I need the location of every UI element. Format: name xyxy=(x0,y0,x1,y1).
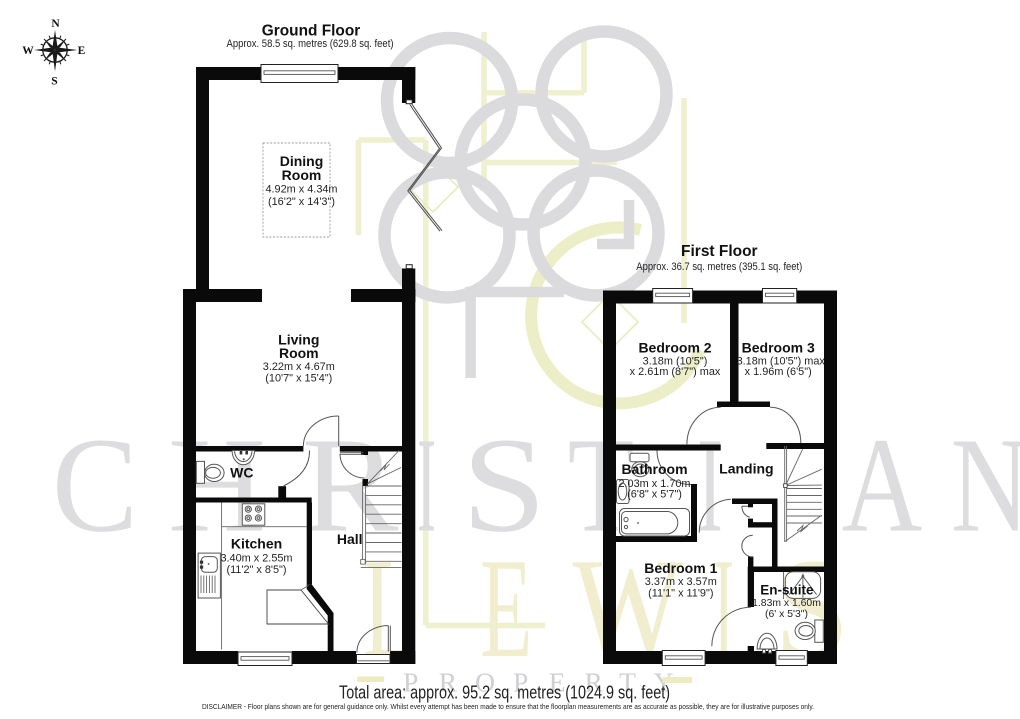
svg-text:S: S xyxy=(51,76,57,88)
svg-text:Bedroom 2: Bedroom 2 xyxy=(638,340,711,356)
svg-text:3.40m x 2.55m: 3.40m x 2.55m xyxy=(220,553,292,565)
svg-text:Room: Room xyxy=(282,167,322,183)
svg-text:Approx. 58.5 sq. metres (629.8: Approx. 58.5 sq. metres (629.8 sq. feet) xyxy=(227,38,394,50)
svg-text:(6' x 5'3"): (6' x 5'3") xyxy=(765,609,808,620)
svg-text:Kitchen: Kitchen xyxy=(231,535,282,551)
svg-text:DISCLAIMER - Floor plans show: DISCLAIMER - Floor plans shown are for g… xyxy=(202,702,814,711)
svg-text:A: A xyxy=(842,409,923,560)
svg-text:N: N xyxy=(951,409,1020,560)
svg-text:En-suite: En-suite xyxy=(760,583,814,598)
svg-text:E: E xyxy=(78,45,86,57)
svg-text:E: E xyxy=(480,529,532,688)
svg-text:Approx. 36.7 sq. metres (395.1: Approx. 36.7 sq. metres (395.1 sq. feet) xyxy=(636,261,802,273)
svg-text:First Floor: First Floor xyxy=(681,243,758,260)
svg-text:(11'1" x 11'9"): (11'1" x 11'9") xyxy=(648,588,713,600)
svg-text:Room: Room xyxy=(279,345,319,361)
svg-text:(11'2" x 8'5"): (11'2" x 8'5") xyxy=(226,564,286,576)
svg-text:1.83m x 1.60m: 1.83m x 1.60m xyxy=(752,598,821,609)
svg-text:x 1.96m (6'5"): x 1.96m (6'5") xyxy=(745,366,812,378)
svg-text:Bathroom: Bathroom xyxy=(621,461,687,477)
svg-text:4.92m x 4.34m: 4.92m x 4.34m xyxy=(265,183,337,195)
svg-text:x 2.61m (8'7") max: x 2.61m (8'7") max xyxy=(630,366,721,378)
svg-text:N: N xyxy=(51,18,60,30)
svg-text:Bedroom 3: Bedroom 3 xyxy=(742,340,815,356)
svg-text:W: W xyxy=(22,45,34,57)
svg-text:Total area: approx. 95.2 sq. m: Total area: approx. 95.2 sq. metres (102… xyxy=(339,682,670,703)
svg-text:(16'2" x 14'3"): (16'2" x 14'3") xyxy=(268,196,335,208)
svg-text:(6'8" x 5'7"): (6'8" x 5'7") xyxy=(627,489,682,501)
svg-text:C: C xyxy=(52,410,138,561)
svg-text:Hall: Hall xyxy=(337,531,363,547)
svg-text:3.22m x 4.67m: 3.22m x 4.67m xyxy=(263,361,335,373)
svg-text:(10'7" x 15'4"): (10'7" x 15'4") xyxy=(265,372,332,384)
svg-text:Landing: Landing xyxy=(719,460,773,476)
svg-text:3.37m x 3.57m: 3.37m x 3.57m xyxy=(645,576,717,588)
svg-text:I: I xyxy=(417,409,436,560)
svg-text:Bedroom 1: Bedroom 1 xyxy=(644,560,717,576)
svg-text:WC: WC xyxy=(230,465,253,481)
